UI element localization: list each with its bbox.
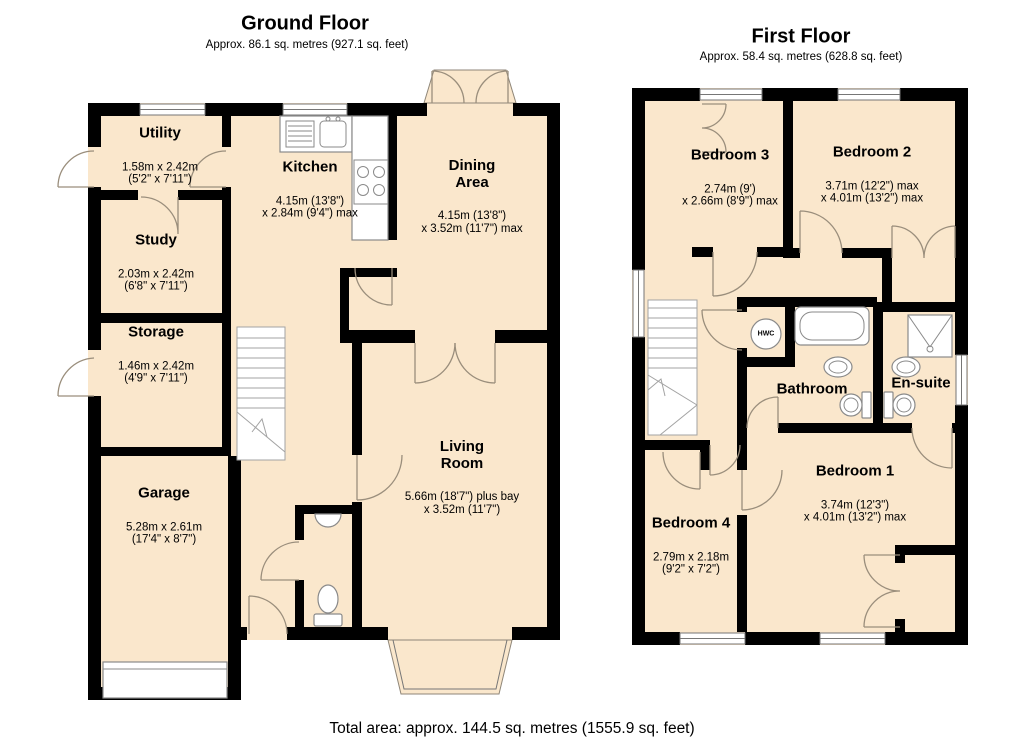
- room-label-bathroom: Bathroom: [777, 364, 848, 417]
- room-label-bedroom-2: Bedroom 2 3.71m (12'2") max x 4.01m (13'…: [821, 126, 923, 223]
- stairs-icon: [237, 327, 285, 460]
- room-label-garage: Garage 5.28m x 2.61m (17'4" x 8'7"): [126, 467, 202, 564]
- total-area-text: Total area: approx. 144.5 sq. metres (15…: [329, 720, 694, 738]
- room-label-ensuite: En-suite: [891, 358, 950, 411]
- room-label-bedroom-1: Bedroom 1 3.74m (12'3") x 4.01m (13'2") …: [804, 445, 906, 542]
- garage-door-icon: [103, 662, 227, 698]
- bay-window-icon: [388, 640, 512, 694]
- shower-icon: [908, 315, 952, 357]
- room-label-study: Study 2.03m x 2.42m (6'8" x 7'11"): [118, 214, 194, 311]
- ground-floor-subtitle: Approx. 86.1 sq. metres (927.1 sq. feet): [206, 39, 409, 51]
- french-door-recess: [424, 70, 516, 103]
- room-label-storage: Storage 1.46m x 2.42m (4'9" x 7'11"): [118, 306, 194, 403]
- ground-floor-title: Ground Floor: [241, 13, 369, 36]
- room-label-kitchen: Kitchen 4.15m (13'8") x 2.84m (9'4") max: [262, 141, 358, 238]
- bathtub-icon: [795, 307, 869, 345]
- first-floor-title: First Floor: [752, 26, 851, 49]
- floorplan-page: Ground Floor Approx. 86.1 sq. metres (92…: [0, 0, 1024, 744]
- room-label-living-room: Living Room 5.66m (18'7") plus bay x 3.5…: [405, 421, 519, 535]
- room-label-bedroom-3: Bedroom 3 2.74m (9') x 2.66m (8'9") max: [682, 129, 778, 226]
- room-label-utility: Utility 1.58m x 2.42m (5'2" x 7'11"): [122, 107, 198, 204]
- stairs-icon: [648, 300, 697, 435]
- hwc-label: HWC: [758, 331, 775, 338]
- room-label-dining-area: Dining Area 4.15m (13'8") x 3.52m (11'7"…: [421, 140, 522, 254]
- room-label-bedroom-4: Bedroom 4 2.79m x 2.18m (9'2" x 7'2"): [652, 497, 730, 594]
- first-floor-subtitle: Approx. 58.4 sq. metres (628.8 sq. feet): [700, 51, 903, 63]
